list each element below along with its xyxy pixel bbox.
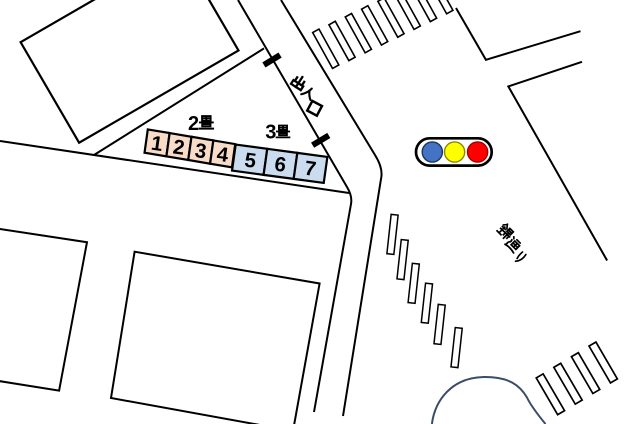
svg-text:2: 2 xyxy=(188,113,199,135)
svg-text:3: 3 xyxy=(265,122,276,144)
